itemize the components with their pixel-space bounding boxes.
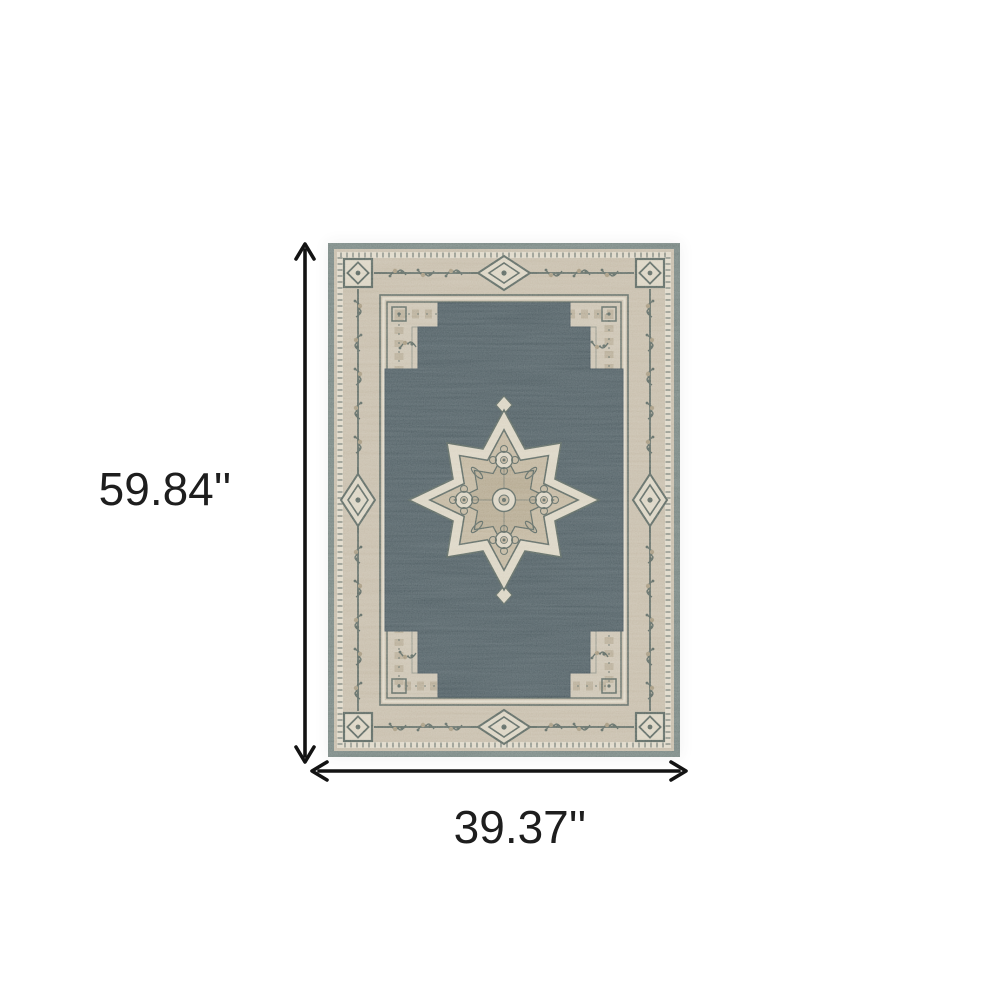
height-dimension-label: 59.84'' bbox=[99, 462, 232, 516]
rug-product-photo bbox=[328, 243, 680, 757]
horizontal-double-arrow-icon bbox=[312, 762, 686, 780]
rug-texture-overlay bbox=[328, 243, 680, 757]
vertical-double-arrow-icon bbox=[296, 244, 314, 762]
width-dimension-label: 39.37'' bbox=[454, 800, 587, 854]
product-dimension-image: 59.84'' 39.37'' bbox=[0, 0, 1000, 1000]
